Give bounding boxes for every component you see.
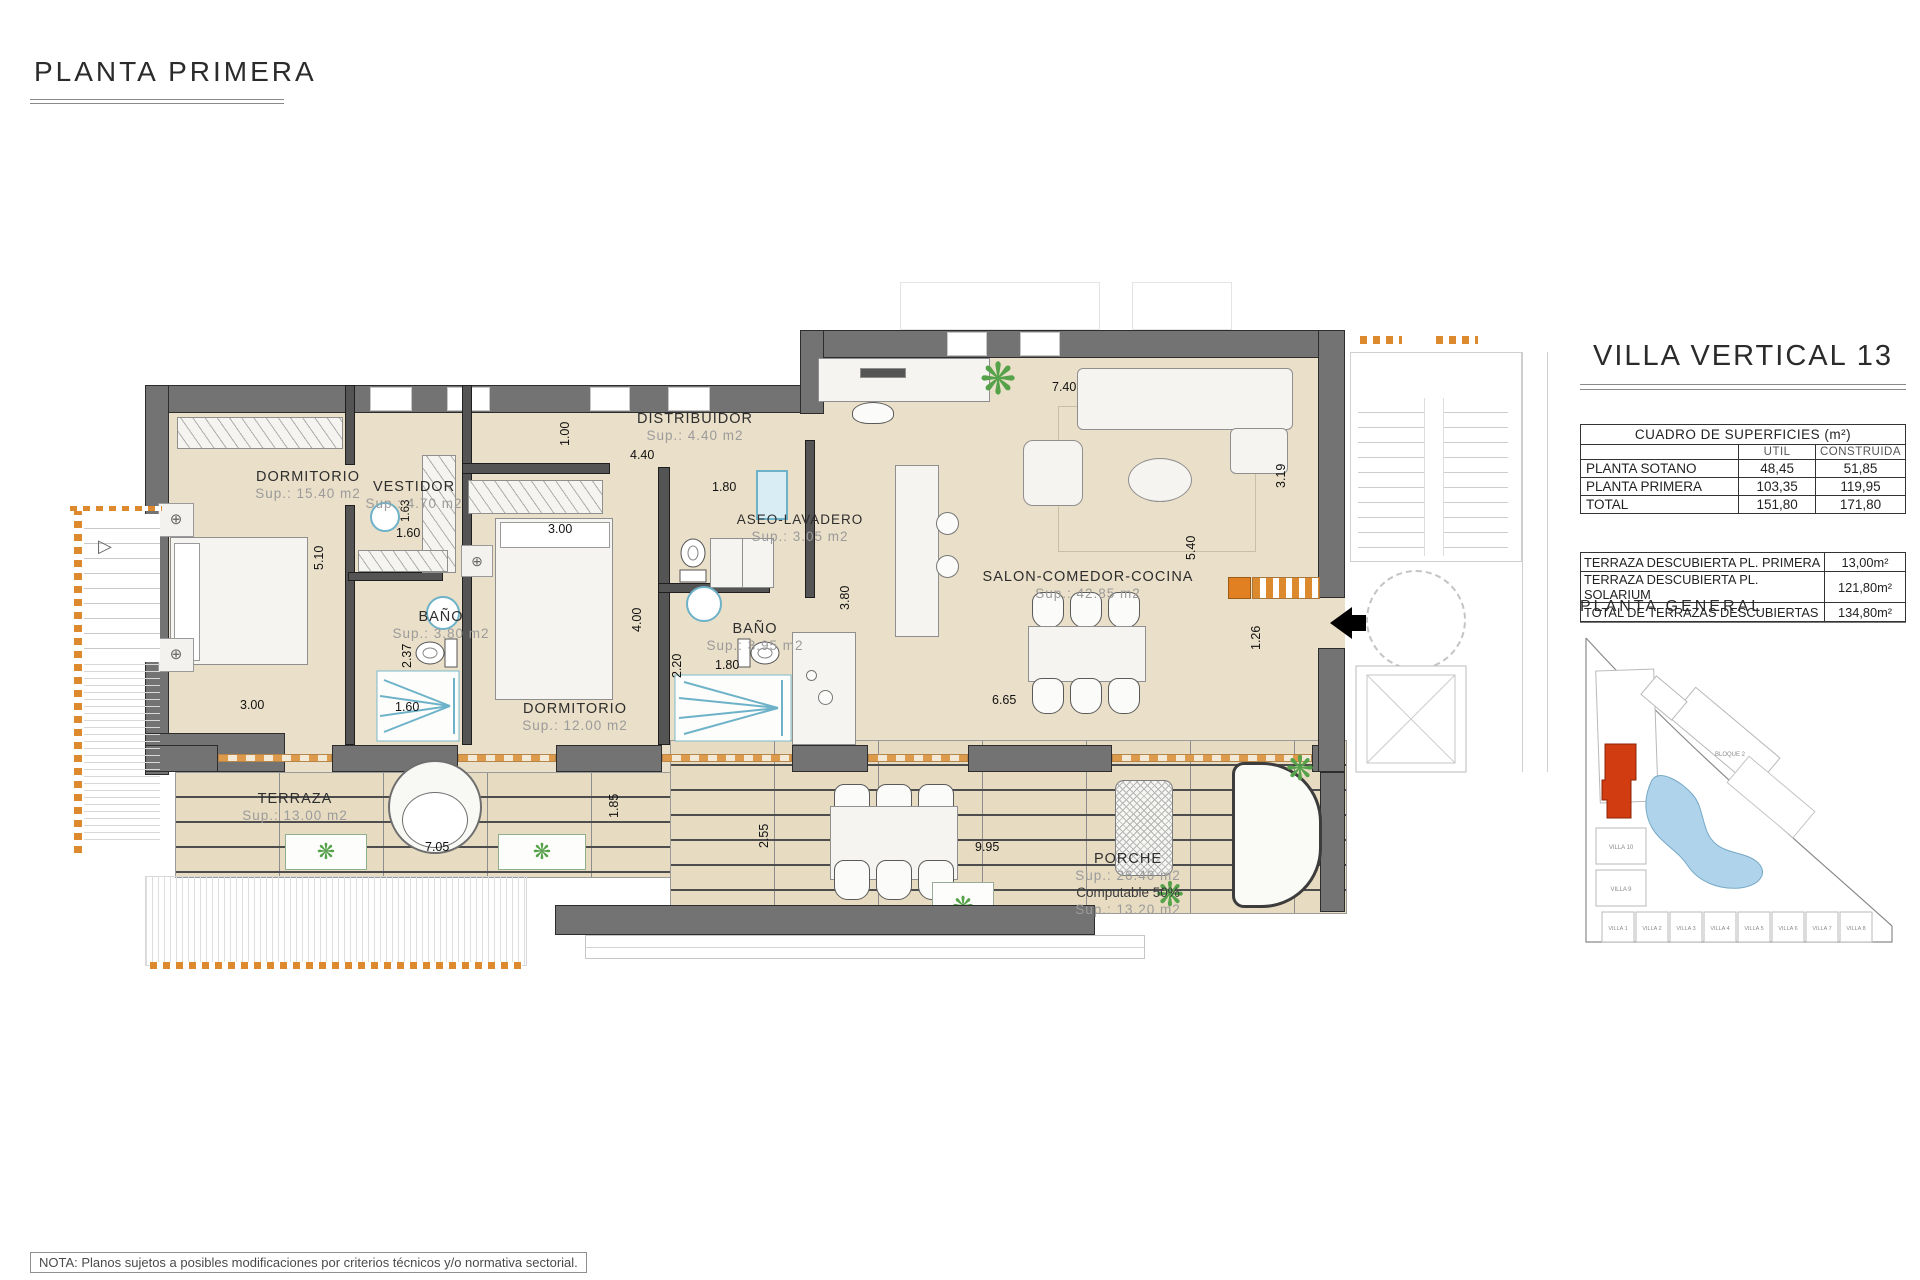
entry-mat <box>1252 577 1320 599</box>
window <box>947 332 987 356</box>
planter: ❋ <box>285 834 367 870</box>
room-area: Sup.: 13.00 m2 <box>200 808 390 825</box>
entrance-arrow-icon <box>1330 607 1352 639</box>
room-name: BAÑO <box>366 608 516 626</box>
dimension-label: 1.80 <box>712 480 736 494</box>
wall-top-salon <box>815 330 1345 358</box>
dimension-label: 9.95 <box>975 840 999 854</box>
room-name: PORCHE <box>988 850 1268 868</box>
desk-chair <box>852 402 894 424</box>
turning-circle <box>1366 570 1466 670</box>
dimension-label: 3.19 <box>1274 464 1288 488</box>
dimension-label: 1.85 <box>607 794 621 818</box>
exterior-stair-steps <box>84 514 160 662</box>
terrace-row-label: TERRAZA DESCUBIERTA PL. PRIMERA <box>1581 553 1825 572</box>
communal-wall-outline <box>1522 352 1548 772</box>
stair-direction-arrow: ▷ <box>98 536 112 557</box>
window <box>1020 332 1060 356</box>
note-box: NOTA: Planos sujetos a posibles modifica… <box>30 1252 587 1273</box>
dimension-label: 1.00 <box>558 422 572 446</box>
site-villa-label: VILLA 7 <box>1812 926 1831 932</box>
dimension-label: 6.65 <box>992 693 1016 707</box>
wall-bottom <box>792 745 868 772</box>
room-area: Sup.: 12.00 m2 <box>475 718 675 735</box>
room-label-bano2: BAÑO Sup.: 3.95 m2 <box>670 620 840 655</box>
communal-stair-steps <box>1358 398 1424 556</box>
roof-outline <box>1132 282 1232 330</box>
room-name: VESTIDOR <box>332 478 496 496</box>
room-area: Sup.: 13.20 m2 <box>988 902 1268 919</box>
room-name: TERRAZA <box>200 790 390 808</box>
surfaces-row-label: PLANTA PRIMERA <box>1581 478 1739 496</box>
window-sill <box>1360 336 1402 344</box>
planter: ❋ <box>498 834 586 870</box>
roof-outline <box>900 282 1100 330</box>
title-underline <box>30 99 284 100</box>
room-area: Sup.: 3.05 m2 <box>650 529 950 546</box>
room-area: Sup.: 26.40 m2 <box>988 868 1268 885</box>
dimension-label: 7.05 <box>425 840 449 854</box>
room-name: ASEO-LAVADERO <box>650 512 950 529</box>
room-label-distribuidor: DISTRIBUIDOR Sup.: 4.40 m2 <box>570 410 820 445</box>
surfaces-col-construida: CONSTRUIDA <box>1815 445 1905 460</box>
wall-interior <box>462 463 610 474</box>
window <box>590 387 630 411</box>
dining-chair <box>1032 678 1064 714</box>
communal-stair-steps <box>1442 398 1508 556</box>
terrace-row-value: 134,80m² <box>1825 603 1906 622</box>
floor-plan: ⊕ ⊕ ⊕ ❋ <box>70 250 1550 990</box>
window <box>370 387 412 411</box>
shower <box>674 674 792 742</box>
site-villa-label: VILLA 2 <box>1642 926 1661 932</box>
surfaces-row-label: PLANTA SOTANO <box>1581 460 1739 478</box>
wall-interior <box>348 572 443 581</box>
entrance-arrow-icon <box>1351 615 1366 631</box>
surfaces-row-construida: 171,80 <box>1815 496 1905 514</box>
wall-bottom <box>556 745 662 772</box>
wall-right <box>1318 330 1345 598</box>
room-label-bano1: BAÑO Sup.: 3.80 m2 <box>366 608 516 643</box>
dimension-label: 1.60 <box>395 700 419 714</box>
kitchen-counter <box>818 358 990 402</box>
surfaces-row-label: TOTAL <box>1581 496 1739 514</box>
site-plan-title: PLANTA GENERAL <box>1580 598 1763 616</box>
wall-interior <box>345 505 355 745</box>
room-name: BAÑO <box>670 620 840 638</box>
porch-steps <box>585 935 1145 959</box>
plant-icon: ❋ <box>970 358 1026 402</box>
dimension-label: 3.00 <box>240 698 264 712</box>
dimension-label: 1.63 <box>400 500 412 522</box>
sink <box>686 586 722 622</box>
ceiling-light-symbol: ⊕ <box>158 503 194 537</box>
elevator <box>1355 665 1467 773</box>
dimension-label: 1.26 <box>1249 626 1263 650</box>
room-area: Sup.: 3.80 m2 <box>366 626 516 643</box>
dimension-label: 4.00 <box>630 608 644 632</box>
site-plan-map: VILLA 10 VILLA 9 BLOQUE 2 VILLA 1 VILLA … <box>1578 630 1910 962</box>
surfaces-col-util: UTIL <box>1739 445 1816 460</box>
dimension-label: 5.40 <box>1184 536 1198 560</box>
dimension-label: 2.37 <box>400 644 414 668</box>
site-villa-label: VILLA 9 <box>1610 887 1632 893</box>
surfaces-row-util: 151,80 <box>1739 496 1816 514</box>
room-name: DISTRIBUIDOR <box>570 410 820 428</box>
plant-icon: ❋ <box>1275 752 1325 786</box>
sliding-door <box>218 754 332 762</box>
site-highlight-villa <box>1602 744 1636 818</box>
stair-edge-orange <box>70 506 162 511</box>
keyboard-mark <box>860 368 906 378</box>
wall-bottom <box>968 745 1112 772</box>
dimension-label: 1.60 <box>396 526 420 540</box>
porch-chair <box>876 860 912 900</box>
site-villa-label: VILLA 10 <box>1609 845 1634 851</box>
window-sill <box>1436 336 1478 344</box>
wardrobe <box>177 417 343 449</box>
surfaces-row-util: 103,35 <box>1739 478 1816 496</box>
title-underline <box>30 103 284 104</box>
stair-edge-orange <box>74 508 82 856</box>
sliding-door <box>868 754 968 762</box>
hob-burner <box>806 670 817 681</box>
exterior-stair-hatch <box>84 664 160 844</box>
site-plan-underline <box>1580 622 1906 623</box>
dimension-label: 7.40 <box>1052 380 1076 394</box>
surfaces-row-construida: 51,85 <box>1815 460 1905 478</box>
room-label-dormitorio2: DORMITORIO Sup.: 12.00 m2 <box>475 700 675 735</box>
sliding-door <box>458 754 556 762</box>
room-area: Sup.: 3.95 m2 <box>670 638 840 655</box>
dimension-label: 2.20 <box>670 654 684 678</box>
terrace-row-value: 121,80m² <box>1825 572 1906 603</box>
dimension-label: 3.80 <box>838 586 852 610</box>
room-area: Sup.: 4.40 m2 <box>570 428 820 445</box>
dining-table <box>1028 626 1146 682</box>
ceiling-light-symbol: ⊕ <box>461 545 493 577</box>
room-name: SALON-COMEDOR-COCINA <box>928 568 1248 586</box>
dimension-label: 1.80 <box>715 658 739 672</box>
retaining-edge-orange <box>150 962 522 969</box>
villa-title-underline <box>1580 389 1906 390</box>
room-area: Sup.: 42.85 m2 <box>928 586 1248 603</box>
dimension-label: 5.10 <box>312 546 326 570</box>
dimension-label: 2.55 <box>757 824 771 848</box>
surfaces-col-empty <box>1581 445 1739 460</box>
surfaces-row-construida: 119,95 <box>1815 478 1905 496</box>
coffee-table <box>1128 458 1192 502</box>
terrace-row-value: 13,00m² <box>1825 553 1906 572</box>
room-computable: Computable 50% <box>988 885 1268 902</box>
armchair <box>1023 440 1083 506</box>
site-villa-label: VILLA 5 <box>1744 926 1763 932</box>
room-name: DORMITORIO <box>475 700 675 718</box>
room-label-aseo: ASEO-LAVADERO Sup.: 3.05 m2 <box>650 512 950 546</box>
wall-interior <box>345 385 355 465</box>
wardrobe <box>358 550 448 572</box>
dimension-label: 3.00 <box>548 522 572 536</box>
ceiling-light-symbol: ⊕ <box>158 638 194 672</box>
wall-porch-right <box>1320 772 1345 912</box>
room-area: Sup.: 4.70 m2 <box>332 496 496 513</box>
dining-chair <box>1070 678 1102 714</box>
stair-divider <box>1424 398 1444 556</box>
dining-chair <box>1108 678 1140 714</box>
villa-title: VILLA VERTICAL 13 <box>1580 340 1906 373</box>
room-label-terraza: TERRAZA Sup.: 13.00 m2 <box>200 790 390 825</box>
villa-title-underline <box>1580 384 1906 385</box>
surfaces-table: CUADRO DE SUPERFICIES (m²) UTIL CONSTRUI… <box>1580 424 1906 514</box>
room-label-porche: PORCHE Sup.: 26.40 m2 Computable 50% Sup… <box>988 850 1268 919</box>
hob-burner <box>818 690 833 705</box>
kitchen-island <box>895 465 939 637</box>
room-label-vestidor: VESTIDOR Sup.: 4.70 m2 <box>332 478 496 513</box>
site-bloque-label: BLOQUE 2 <box>1715 752 1746 758</box>
sliding-door <box>662 754 792 762</box>
surfaces-row-util: 48,45 <box>1739 460 1816 478</box>
site-villa-label: VILLA 6 <box>1778 926 1797 932</box>
dimension-label: 4.40 <box>630 448 654 462</box>
sofa <box>1077 368 1293 430</box>
porch-chair <box>834 860 870 900</box>
surfaces-table-title: CUADRO DE SUPERFICIES (m²) <box>1581 425 1906 445</box>
room-label-salon: SALON-COMEDOR-COCINA Sup.: 42.85 m2 <box>928 568 1248 603</box>
site-villa-label: VILLA 4 <box>1710 926 1729 932</box>
site-villa-label: VILLA 8 <box>1846 926 1865 932</box>
site-villa-label: VILLA 1 <box>1608 926 1627 932</box>
retaining-hatch <box>145 876 527 966</box>
window <box>668 387 710 411</box>
site-villa-label: VILLA 3 <box>1676 926 1695 932</box>
page-title: PLANTA PRIMERA <box>34 56 317 88</box>
